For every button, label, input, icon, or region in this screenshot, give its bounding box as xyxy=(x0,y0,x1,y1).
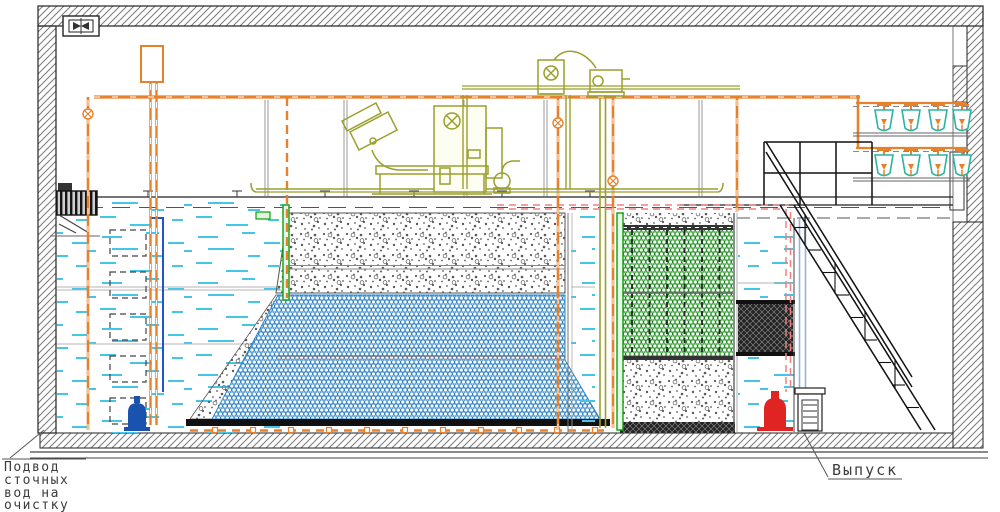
feed-hopper xyxy=(342,103,428,170)
filter-cartridge xyxy=(738,304,793,352)
gravel-layer xyxy=(276,213,565,293)
vent-unit xyxy=(63,16,99,36)
bottom-mesh-strip xyxy=(620,422,735,433)
wall-block xyxy=(953,66,967,102)
roof-slab xyxy=(38,6,983,26)
bottom-grid-bar xyxy=(623,356,733,360)
outlet-chamber xyxy=(795,388,825,431)
drawing-canvas: Подвод сточных вод на очистку Выпуск xyxy=(0,0,1000,512)
control-cabinet xyxy=(434,106,502,192)
treatment-plant-drawing: Подвод сточных вод на очистку Выпуск xyxy=(0,0,1000,512)
deck-and-levels xyxy=(56,100,953,218)
motor-unit xyxy=(588,70,630,96)
biocarrier-block xyxy=(620,213,735,433)
handrail-hook xyxy=(251,183,256,192)
floor-slab xyxy=(40,433,953,448)
expanded-clay-media xyxy=(212,295,600,419)
blower-pump xyxy=(494,161,520,193)
cartridge-frame xyxy=(736,300,795,304)
channel-water xyxy=(571,213,595,432)
right-wall-lower xyxy=(953,222,983,448)
valve-icon xyxy=(553,118,563,128)
outlet-label: Выпуск xyxy=(832,461,898,479)
green-media xyxy=(623,230,733,358)
inlet-label-line4: очистку xyxy=(4,498,69,512)
distribution-channel xyxy=(568,95,606,432)
stair-steps xyxy=(794,228,919,408)
valve-icon xyxy=(83,109,93,119)
aeration-nozzle-icon xyxy=(213,428,218,433)
clarifier-water-upper xyxy=(738,222,793,302)
air-receiver-tank xyxy=(141,46,163,82)
left-wall xyxy=(38,26,56,433)
valve-icon xyxy=(608,176,618,186)
handrail-hook xyxy=(718,183,723,192)
gravel-under-layer xyxy=(623,360,733,422)
gravel-top-band xyxy=(623,213,733,227)
support-beam xyxy=(186,419,610,426)
diffuser-cups xyxy=(875,102,971,176)
weir-fitting xyxy=(256,212,270,219)
blower-equipment xyxy=(251,51,740,194)
weir-strip xyxy=(617,213,623,430)
